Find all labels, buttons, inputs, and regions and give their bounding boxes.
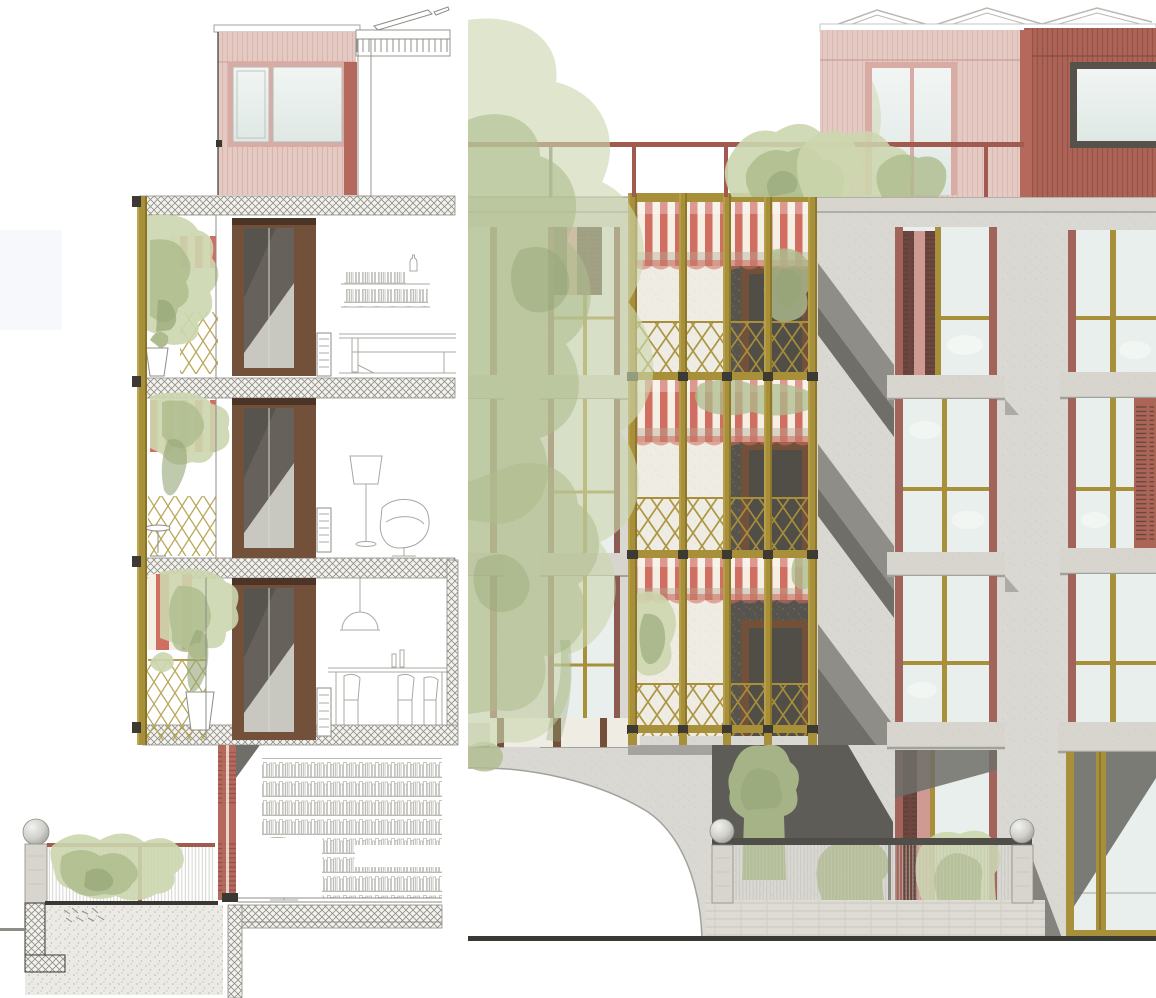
slab-shadow xyxy=(236,745,260,778)
terrace-ground-line xyxy=(45,901,218,905)
slab-roof xyxy=(140,196,455,215)
section-glass-doors xyxy=(232,218,331,740)
window-mid-f2 xyxy=(895,576,997,722)
sideboard-sketch xyxy=(339,334,456,373)
fence-post-right xyxy=(1012,845,1033,903)
dining-set-sketch xyxy=(328,650,448,732)
sphere-finial-left xyxy=(710,819,734,843)
fence-mesh xyxy=(732,845,1012,900)
section-penthouse xyxy=(214,7,450,196)
door-floor1 xyxy=(232,578,331,740)
penthouse-window xyxy=(228,62,344,147)
fence-post-section xyxy=(25,844,47,903)
section-balconies xyxy=(132,196,238,745)
drawing-canvas: Residential building — facade section an… xyxy=(0,0,1156,998)
window-right-f3 xyxy=(1068,398,1156,548)
fence-rail xyxy=(712,838,1032,845)
solar-panel-section xyxy=(374,10,432,30)
window-right-f4 xyxy=(1068,230,1156,372)
basement-wall xyxy=(228,905,242,998)
planter-pot-f3 xyxy=(146,348,168,376)
fence-post-left xyxy=(712,845,733,903)
window-column-right xyxy=(1058,230,1156,936)
slab-basement xyxy=(237,905,442,922)
sphere-finial-right xyxy=(1010,819,1034,843)
architectural-drawing: Residential building — facade section an… xyxy=(0,0,1156,998)
armchair-sketch xyxy=(380,499,429,556)
section-drawing-panel xyxy=(0,7,458,998)
entrance-glazing xyxy=(1066,752,1156,936)
espalier-balcony-stack xyxy=(627,193,818,745)
ground-fill xyxy=(25,905,223,995)
sphere-finial-section xyxy=(23,819,49,845)
margin-tint xyxy=(0,230,62,330)
window-mid-f3 xyxy=(895,399,997,552)
cut-wall-right xyxy=(447,560,458,725)
elevation-drawing-panel xyxy=(468,8,1156,941)
penthouse-red xyxy=(1020,28,1156,197)
floor-lamp-sketch xyxy=(350,456,382,547)
roof-deck-joists xyxy=(356,39,450,56)
balcony-table xyxy=(146,525,170,531)
penthouse-corner-board xyxy=(344,62,357,195)
library-book-wall xyxy=(238,758,443,902)
door-floor2 xyxy=(232,398,331,558)
door-floor3 xyxy=(232,218,331,376)
section-ground xyxy=(0,745,260,995)
bookshelf-sketch xyxy=(341,255,430,307)
street-ground-line xyxy=(468,936,1156,941)
window-right-f2 xyxy=(1068,574,1156,722)
planter-pot-f1 xyxy=(186,692,214,730)
window-mid-f4 xyxy=(895,227,997,375)
